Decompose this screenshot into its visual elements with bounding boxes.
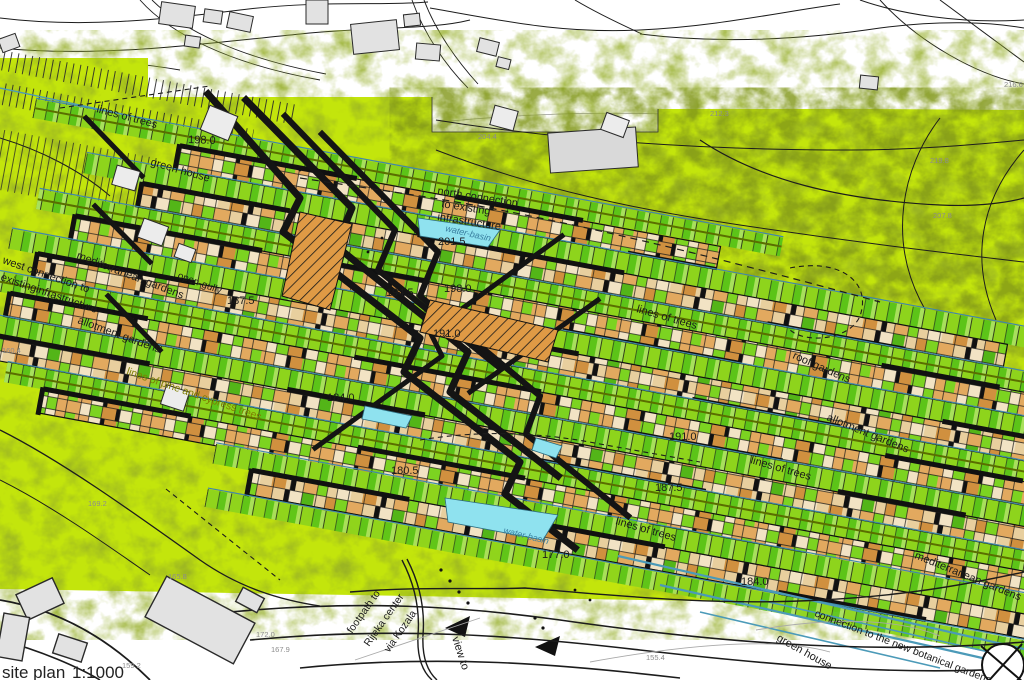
map-label: 184.0	[741, 576, 769, 588]
elevation-mark: 219.8	[930, 156, 949, 165]
map-label: 191.0	[669, 431, 697, 443]
map-label: 187.5	[655, 482, 683, 494]
elevation-mark: 172.0	[256, 630, 275, 639]
elevation-mark: 207.8	[933, 211, 952, 220]
map-label: 201.5	[438, 236, 466, 248]
map-label: 191.0	[433, 328, 461, 340]
map-label: 198.0	[444, 283, 472, 295]
map-label: 177.0	[542, 549, 570, 561]
elevation-mark: 167.9	[271, 645, 290, 654]
elevation-mark: 165.8	[168, 572, 187, 581]
map-label: 184.0	[327, 392, 355, 404]
elevation-mark: 159.2	[122, 661, 141, 670]
elevation-mark: 155.4	[646, 653, 665, 662]
elevation-mark: 169.2	[88, 499, 107, 508]
elevation-mark: 160.4	[2, 346, 21, 355]
plan-scale-text: 1:1000	[72, 663, 124, 680]
site-plan-map: site plan 1:1000 lines of trees198.0gree…	[0, 0, 1024, 680]
plan-title: site plan 1:1000	[2, 663, 124, 680]
map-label: 180.5	[391, 465, 419, 477]
elevation-mark: 204.4	[478, 132, 497, 141]
elevation-mark: 216.6	[1004, 80, 1023, 89]
map-label: 187.5	[227, 295, 255, 307]
plan-title-text: site plan	[2, 663, 65, 680]
elevation-mark: 212.3	[710, 109, 729, 118]
map-label: 194.5	[386, 287, 414, 299]
map-label: 198.0	[188, 134, 216, 147]
site-plan-page: site plan 1:1000 lines of trees198.0gree…	[0, 0, 1024, 680]
